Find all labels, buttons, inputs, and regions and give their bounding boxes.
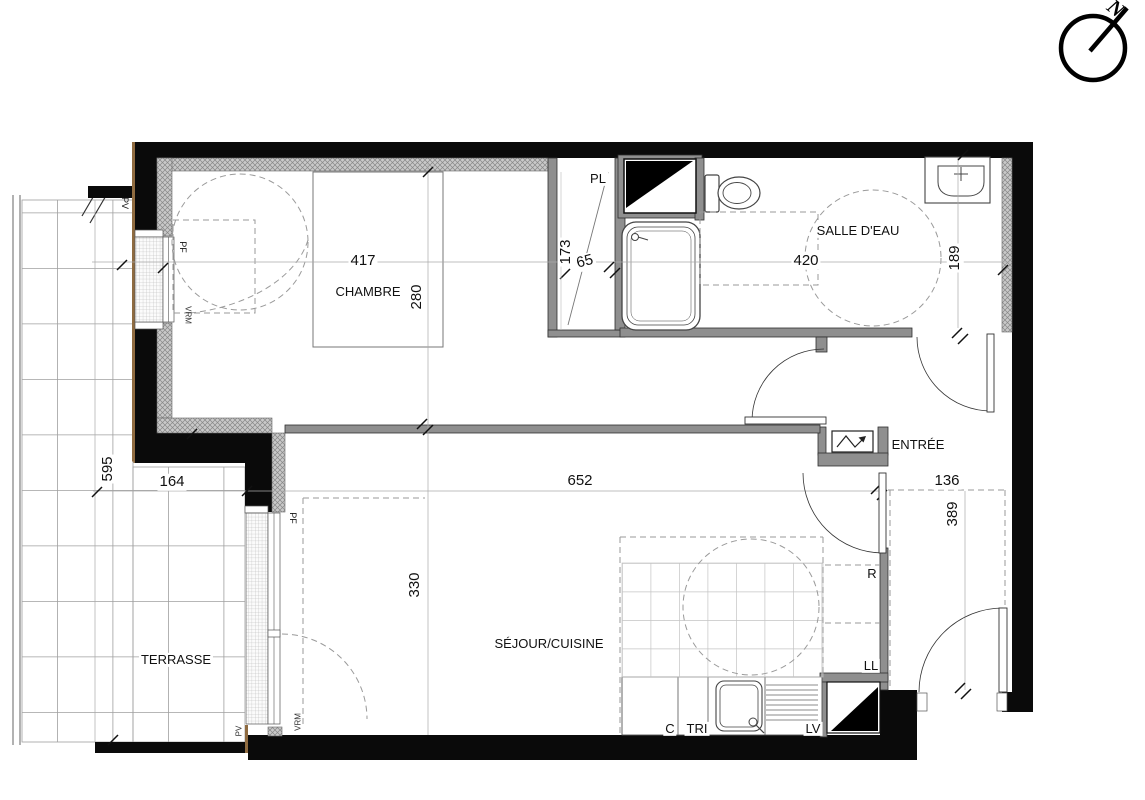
floor-plan-drawing	[0, 0, 1145, 800]
room-label-salle-deau: SALLE D'EAU	[815, 224, 902, 238]
joinery-label-vrm-sejour: VRM	[295, 713, 304, 731]
room-label-terrasse: TERRASSE	[139, 653, 213, 667]
balcony-edge-lines	[13, 195, 20, 745]
bed	[313, 172, 443, 347]
appliance-label-waste-sorting: TRI	[685, 722, 710, 736]
terrasse-window-door	[245, 506, 280, 724]
electrical-panel	[832, 431, 873, 452]
partition-door-stub	[816, 337, 827, 352]
floor-plan: CHAMBRE 417 280 PL 173 65 SALLE D'EAU 42…	[0, 0, 1145, 800]
dim-sejour-width: 652	[565, 473, 594, 490]
appliance-label-dishwasher: LV	[804, 722, 823, 736]
terrasse-edge-wall	[95, 742, 245, 753]
room-label-sejour-cuisine: SÉJOUR/CUISINE	[492, 637, 605, 651]
wall-jog	[135, 433, 272, 463]
joinery-label-pf-sejour: PF	[287, 512, 297, 524]
partition-sejour-north	[285, 425, 820, 433]
dim-terrasse-width: 164	[157, 474, 186, 491]
washbasin	[925, 157, 990, 203]
partition-pl-bottom	[548, 330, 625, 337]
chambre-window	[135, 230, 174, 329]
wall-west-lower	[135, 323, 157, 433]
kitchen-zone-grid	[622, 563, 823, 677]
dim-placard-depth: 173	[558, 237, 575, 266]
door-leaf	[745, 417, 826, 424]
door-leaf	[999, 608, 1007, 692]
room-label-chambre: CHAMBRE	[333, 285, 402, 299]
dim-salle-deau-depth: 189	[947, 243, 964, 272]
room-label-entree: ENTRÉE	[890, 438, 947, 452]
door-jamb	[997, 693, 1007, 711]
joinery-label-pv-balcony: PV	[119, 197, 129, 209]
panel-niche-bottom	[818, 453, 888, 466]
appliance-label-refrigerator: R	[865, 567, 878, 581]
door-leaf	[987, 334, 994, 412]
dim-entree-depth: 389	[945, 499, 962, 528]
wall-east	[1012, 142, 1033, 712]
balcony-strip-tiles	[22, 200, 133, 742]
wall-west-upper	[135, 142, 157, 236]
dim-chambre-width: 417	[348, 253, 377, 270]
kitchen-sink	[716, 681, 764, 733]
dim-salle-deau-width: 420	[791, 253, 820, 270]
joinery-label-pv-terrasse: PV	[236, 726, 245, 737]
dim-chambre-depth: 280	[409, 282, 426, 311]
terrasse-tiles	[133, 467, 245, 742]
partition-pl-left	[548, 158, 557, 337]
dim-terrasse-depth: 595	[100, 454, 117, 483]
dim-sejour-depth: 330	[407, 570, 424, 599]
wall-south-east-block	[880, 690, 917, 760]
shower-tray	[622, 222, 700, 330]
technical-duct-bottom	[827, 682, 880, 733]
room-label-placard: PL	[588, 172, 608, 186]
joinery-label-pf-chambre: PF	[177, 241, 187, 253]
panel-niche-right	[878, 427, 888, 455]
door-jamb	[917, 693, 927, 711]
duct-frame-bottom-top	[820, 673, 888, 682]
joinery-label-vrm-chambre: VRM	[183, 306, 192, 324]
technical-duct-top	[624, 159, 696, 213]
wall-south	[248, 735, 917, 760]
appliance-label-washing-machine: LL	[862, 659, 880, 673]
door-leaf	[879, 473, 886, 553]
dim-entree-width: 136	[932, 473, 961, 490]
appliance-label-cooktop: C	[663, 722, 676, 736]
wall-north	[135, 142, 1033, 158]
partition-kitchen-east	[880, 548, 888, 690]
wall-sejour-west	[245, 462, 272, 512]
